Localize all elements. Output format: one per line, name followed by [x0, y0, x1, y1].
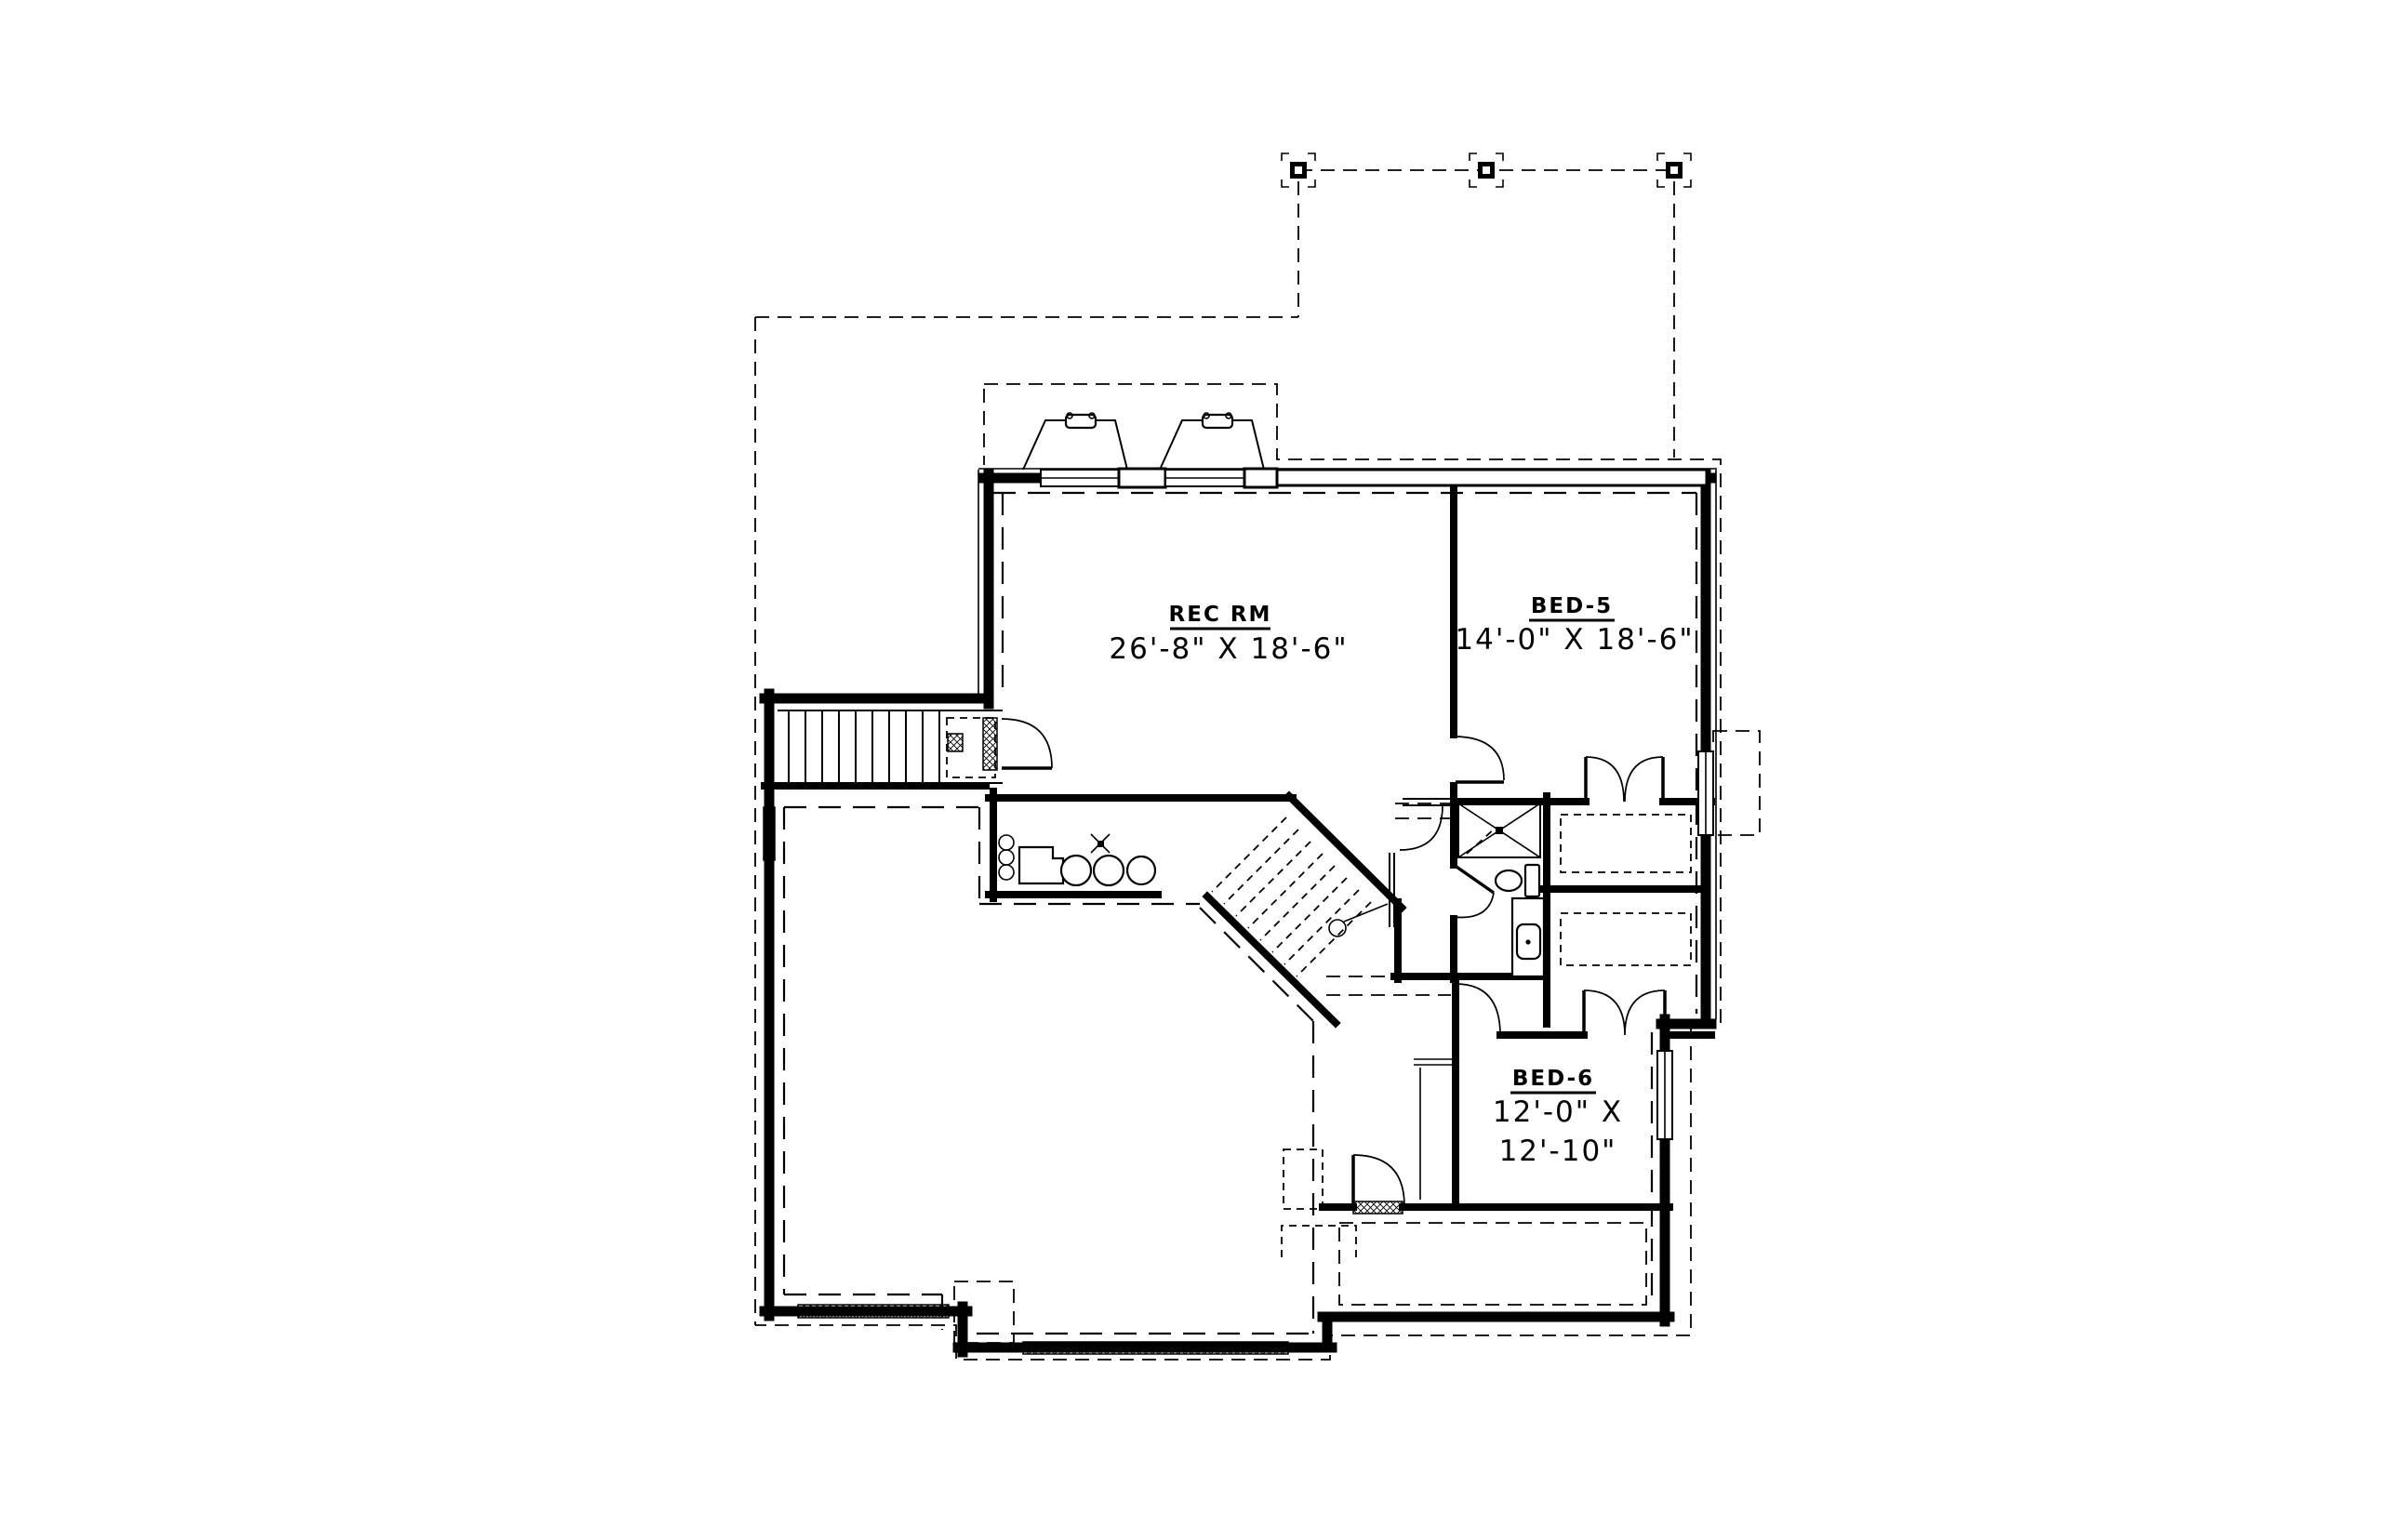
mechanical-area	[999, 834, 1155, 885]
door-swing-arc	[1002, 719, 1052, 768]
door-swing-arc	[1454, 737, 1504, 780]
window-band	[1277, 470, 1707, 485]
floor-drain-icon	[1091, 834, 1110, 853]
floor-plan-drawing: REC RM 26'-8" X 18'-6" BED-5 14'-0" X 18…	[0, 0, 2381, 1540]
toilet-icon	[1496, 870, 1522, 891]
door-threshold	[1353, 1201, 1403, 1214]
well-ladder-icon	[1203, 415, 1232, 428]
door-swing-arc	[1454, 893, 1494, 917]
double-door-arcs	[1584, 990, 1665, 1035]
windows	[1041, 469, 1713, 1139]
hatched-foundation-sections	[764, 807, 1288, 1354]
closet-shelf-dashed	[1561, 815, 1691, 872]
rec-room-label: REC RM	[1169, 603, 1272, 627]
softener-tank-icon	[999, 850, 1014, 865]
double-door-arcs	[1586, 757, 1663, 802]
closet-rod-shelf	[1414, 1059, 1454, 1200]
staircase-upper-run	[778, 710, 1003, 783]
door-swing-arc	[1353, 1155, 1404, 1206]
deck-posts	[1282, 153, 1691, 458]
closet-shelf-dashed	[1561, 913, 1691, 965]
bed6-label: BED-6	[1512, 1067, 1594, 1091]
floor-plan-sheet: REC RM 26'-8" X 18'-6" BED-5 14'-0" X 18…	[0, 0, 2381, 1540]
staircase-lower-run	[1212, 817, 1394, 976]
room-labels: REC RM 26'-8" X 18'-6" BED-5 14'-0" X 18…	[1109, 594, 1694, 1168]
softener-tank-icon	[999, 865, 1014, 880]
furnace-icon	[1019, 847, 1063, 883]
door-swing-arc	[1400, 805, 1443, 850]
bed6-dimensions-line2: 12'-10"	[1499, 1135, 1617, 1168]
deck-post-icon	[1470, 153, 1503, 187]
well-ladder-icon	[1066, 415, 1096, 428]
bathroom	[1458, 803, 1544, 976]
bed5-dimensions: 14'-0" X 18'-6"	[1455, 623, 1694, 657]
window-frame	[1244, 469, 1277, 487]
door-leaf	[1454, 865, 1494, 893]
sink-drain-icon	[1525, 939, 1530, 944]
stair-handrail	[1390, 853, 1394, 927]
water-softener-icon	[1127, 856, 1155, 884]
shower-door	[1467, 828, 1496, 854]
softener-tank-icon	[999, 835, 1014, 850]
stair-direction-icon	[1329, 920, 1346, 936]
bed5-label: BED-5	[1531, 594, 1613, 618]
bed6-dimensions-line1: 12'-0" X	[1493, 1095, 1623, 1129]
water-heater-icon	[1094, 856, 1124, 885]
door-jamb	[983, 718, 997, 770]
window-frame	[1119, 469, 1165, 487]
newel-post	[948, 734, 963, 751]
toilet-tank	[1525, 865, 1539, 896]
door-swing-arc	[1456, 984, 1500, 1035]
water-heater-icon	[1061, 856, 1091, 885]
rec-room-dimensions: 26'-8" X 18'-6"	[1109, 632, 1348, 666]
